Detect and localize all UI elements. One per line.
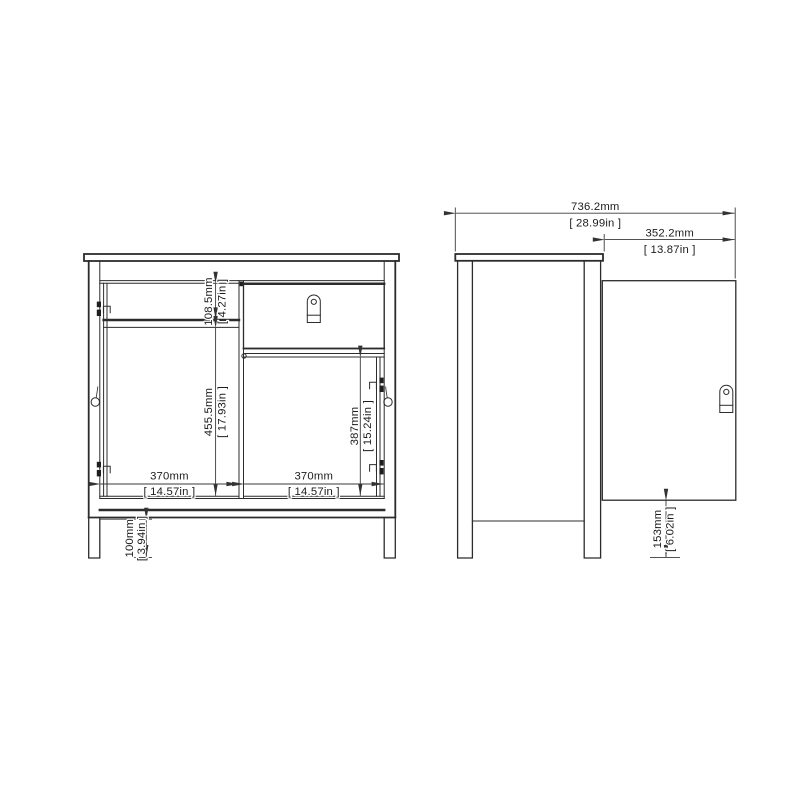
dim-label-mm: 387mm (349, 407, 361, 446)
side-view: 736.2mm [ 28.99in ] 352.2mm [ 13.87in ] … (455, 201, 736, 558)
dim-label-inches: [ 13.87in ] (644, 244, 696, 256)
dim-label-inches: [ 15.24in ] (362, 400, 374, 452)
dim-right-door-height: 387mm [ 15.24in ] (349, 358, 374, 496)
right-door-handle-strap (386, 387, 388, 398)
dim-leg-height: 100mm [ 3.94in ] (100, 516, 152, 561)
open-door-handle (720, 385, 733, 412)
right-door-handle-loop (384, 398, 392, 406)
dim-label-mm: 736.2mm (571, 201, 620, 213)
dim-right-door-width: 370mm [ 14.57in ] (244, 471, 384, 499)
drawer-handle-stud (311, 299, 316, 304)
dim-label-mm: 153mm (652, 510, 664, 549)
open-door-handle-stud (724, 389, 729, 394)
dim-label-inches: [ 4.27in ] (216, 279, 228, 324)
left-door-handle (91, 387, 99, 407)
dim-label-inches: [ 14.57in ] (288, 486, 340, 498)
dim-door-bottom-clearance: 153mm [ 6.02in ] (650, 501, 680, 558)
dim-label-inches: [ 28.99in ] (569, 218, 621, 230)
dim-label-mm: 370mm (294, 471, 333, 483)
left-door-handle-strap (96, 387, 98, 398)
dim-label-inches: [ 17.93in ] (217, 386, 229, 438)
dim-label-mm: 370mm (150, 471, 189, 483)
open-door-panel (602, 281, 736, 501)
dim-label-inches: [ 14.57in ] (143, 486, 195, 498)
side-top-panel (455, 254, 603, 261)
side-back-upright (458, 261, 473, 558)
dim-top-section-height: 108.5mm [ 4.27in ] (203, 277, 229, 326)
furniture-spec-page: 108.5mm [ 4.27in ] 455.5mm [ 17.93in ] 3… (0, 0, 800, 800)
open-door-outline (602, 281, 736, 501)
drawer-front (244, 283, 385, 348)
drawer-handle (307, 295, 320, 323)
dim-label-mm: 455.5mm (203, 388, 215, 437)
right-door-handle (384, 387, 392, 407)
dim-label-mm: 100mm (124, 519, 136, 558)
dim-door-open-projection: 352.2mm [ 13.87in ] (604, 227, 734, 256)
left-door-handle-loop (91, 398, 99, 406)
dim-label-inches: [ 3.94in ] (136, 516, 148, 561)
dim-label-mm: 108.5mm (203, 277, 215, 326)
dim-label-mm: 352.2mm (645, 227, 694, 239)
drawer (244, 283, 385, 348)
side-front-upright (584, 261, 600, 558)
dim-left-door-height: 455.5mm [ 17.93in ] (203, 328, 229, 496)
front-view: 108.5mm [ 4.27in ] 455.5mm [ 17.93in ] 3… (84, 254, 399, 561)
front-top-panel (84, 254, 399, 261)
front-right-leg (384, 518, 395, 559)
centre-divider (239, 281, 246, 499)
furniture-technical-drawing: 108.5mm [ 4.27in ] 455.5mm [ 17.93in ] 3… (0, 0, 800, 800)
dim-label-inches: [ 6.02in ] (664, 507, 676, 552)
front-left-leg (89, 518, 100, 559)
dim-left-door-width: 370mm [ 14.57in ] (100, 471, 238, 499)
